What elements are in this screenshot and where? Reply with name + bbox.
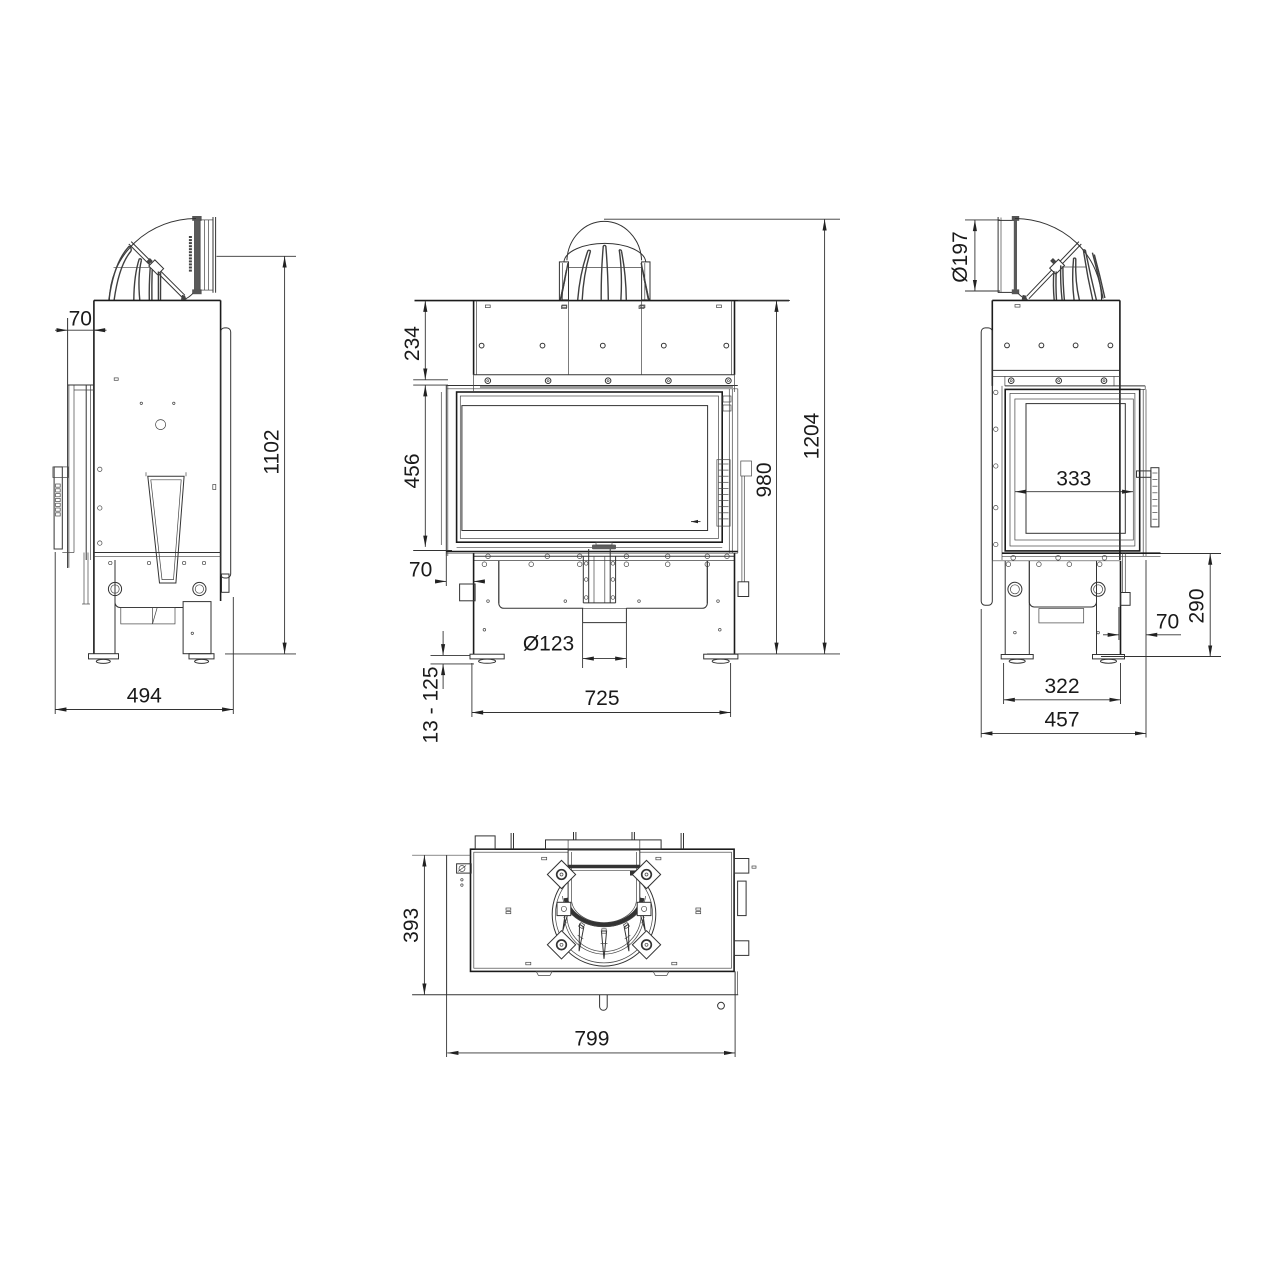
svg-text:393: 393 [400, 908, 423, 943]
svg-text:1204: 1204 [800, 412, 823, 459]
svg-text:70: 70 [69, 308, 92, 331]
svg-text:980: 980 [753, 462, 776, 497]
svg-text:333: 333 [1056, 468, 1091, 491]
svg-text:290: 290 [1186, 588, 1209, 623]
svg-text:494: 494 [127, 685, 162, 708]
svg-text:70: 70 [409, 559, 432, 582]
svg-text:Ø123: Ø123 [523, 633, 574, 656]
svg-text:456: 456 [401, 453, 424, 488]
svg-text:322: 322 [1044, 675, 1079, 698]
svg-text:Ø197: Ø197 [949, 231, 972, 282]
svg-text:799: 799 [574, 1028, 609, 1051]
svg-text:725: 725 [584, 687, 619, 710]
svg-text:1102: 1102 [261, 429, 284, 474]
svg-text:234: 234 [401, 326, 424, 361]
svg-text:70: 70 [1156, 611, 1179, 634]
svg-text:13 - 125: 13 - 125 [419, 666, 442, 743]
svg-text:457: 457 [1044, 709, 1079, 732]
